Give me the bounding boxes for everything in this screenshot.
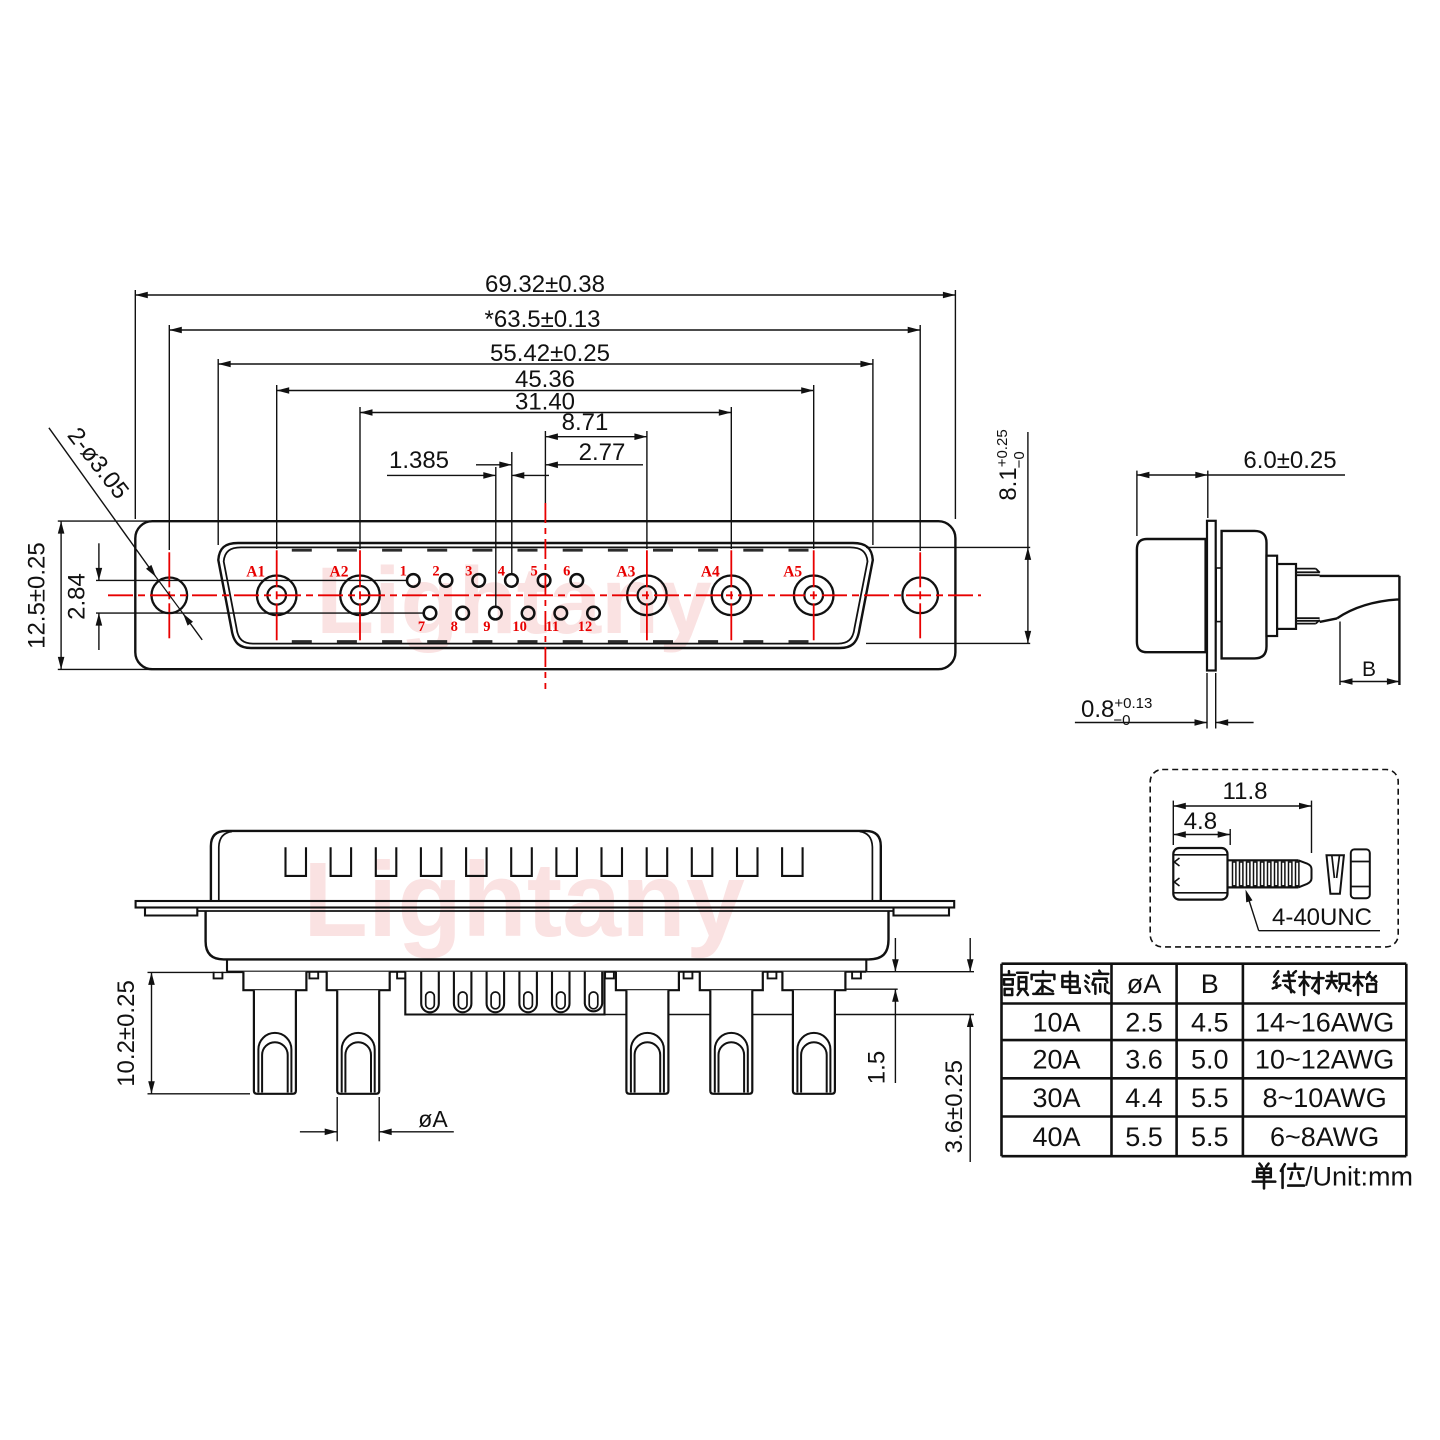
- svg-text:7: 7: [418, 619, 425, 635]
- svg-text:A3: A3: [616, 564, 635, 581]
- svg-text:1.385: 1.385: [389, 447, 449, 474]
- svg-text:2: 2: [432, 564, 439, 580]
- svg-text:1.5: 1.5: [864, 1051, 891, 1084]
- svg-text:/Unit:mm: /Unit:mm: [1305, 1162, 1413, 1192]
- svg-text:5.0: 5.0: [1191, 1045, 1229, 1075]
- svg-text:12.5±0.25: 12.5±0.25: [23, 542, 50, 649]
- svg-text:3: 3: [465, 564, 472, 580]
- svg-text:10.2±0.25: 10.2±0.25: [113, 980, 140, 1087]
- svg-text:11: 11: [545, 619, 559, 635]
- svg-text:4.5: 4.5: [1191, 1007, 1229, 1037]
- svg-text:A2: A2: [330, 564, 349, 581]
- svg-text:4-40UNC: 4-40UNC: [1272, 904, 1372, 931]
- svg-text:5: 5: [530, 564, 537, 580]
- svg-text:6.0±0.25: 6.0±0.25: [1243, 447, 1336, 474]
- svg-text:øA: øA: [418, 1106, 448, 1132]
- svg-text:2.5: 2.5: [1125, 1007, 1163, 1037]
- svg-text:A1: A1: [246, 564, 265, 581]
- svg-text:*63.5±0.13: *63.5±0.13: [485, 306, 601, 333]
- svg-text:A5: A5: [783, 564, 802, 581]
- svg-text:8~10AWG: 8~10AWG: [1262, 1083, 1386, 1113]
- svg-text:5.5: 5.5: [1191, 1083, 1229, 1113]
- svg-text:12: 12: [578, 619, 593, 635]
- svg-text:3.6±0.25: 3.6±0.25: [941, 1060, 968, 1153]
- svg-text:69.32±0.38: 69.32±0.38: [485, 271, 605, 298]
- svg-text:B: B: [1201, 969, 1219, 999]
- svg-text:B: B: [1362, 658, 1376, 681]
- svg-text:55.42±0.25: 55.42±0.25: [490, 340, 610, 367]
- svg-text:5.5: 5.5: [1191, 1122, 1229, 1152]
- svg-text:2.77: 2.77: [579, 439, 626, 466]
- svg-text:30A: 30A: [1032, 1083, 1080, 1113]
- svg-text:10: 10: [512, 619, 527, 635]
- svg-text:5.5: 5.5: [1125, 1122, 1163, 1152]
- svg-text:11.8: 11.8: [1223, 778, 1268, 805]
- svg-text:Lightany: Lightany: [316, 548, 712, 654]
- svg-text:A4: A4: [701, 564, 720, 581]
- svg-text:1: 1: [400, 564, 407, 580]
- svg-text:6~8AWG: 6~8AWG: [1270, 1122, 1379, 1152]
- svg-text:4.4: 4.4: [1125, 1083, 1163, 1113]
- svg-text:4.8: 4.8: [1184, 808, 1217, 835]
- svg-text:10~12AWG: 10~12AWG: [1255, 1045, 1394, 1075]
- svg-text:4: 4: [498, 564, 505, 580]
- svg-text:øA: øA: [1127, 969, 1162, 999]
- svg-text:8: 8: [451, 619, 458, 635]
- svg-text:20A: 20A: [1032, 1045, 1080, 1075]
- svg-text:8.71: 8.71: [562, 409, 609, 436]
- svg-text:2.84: 2.84: [64, 573, 91, 620]
- svg-text:6: 6: [563, 564, 570, 580]
- svg-text:3.6: 3.6: [1125, 1045, 1163, 1075]
- svg-text:10A: 10A: [1032, 1007, 1080, 1037]
- svg-text:9: 9: [483, 619, 490, 635]
- svg-text:40A: 40A: [1032, 1122, 1080, 1152]
- svg-text:14~16AWG: 14~16AWG: [1255, 1007, 1394, 1037]
